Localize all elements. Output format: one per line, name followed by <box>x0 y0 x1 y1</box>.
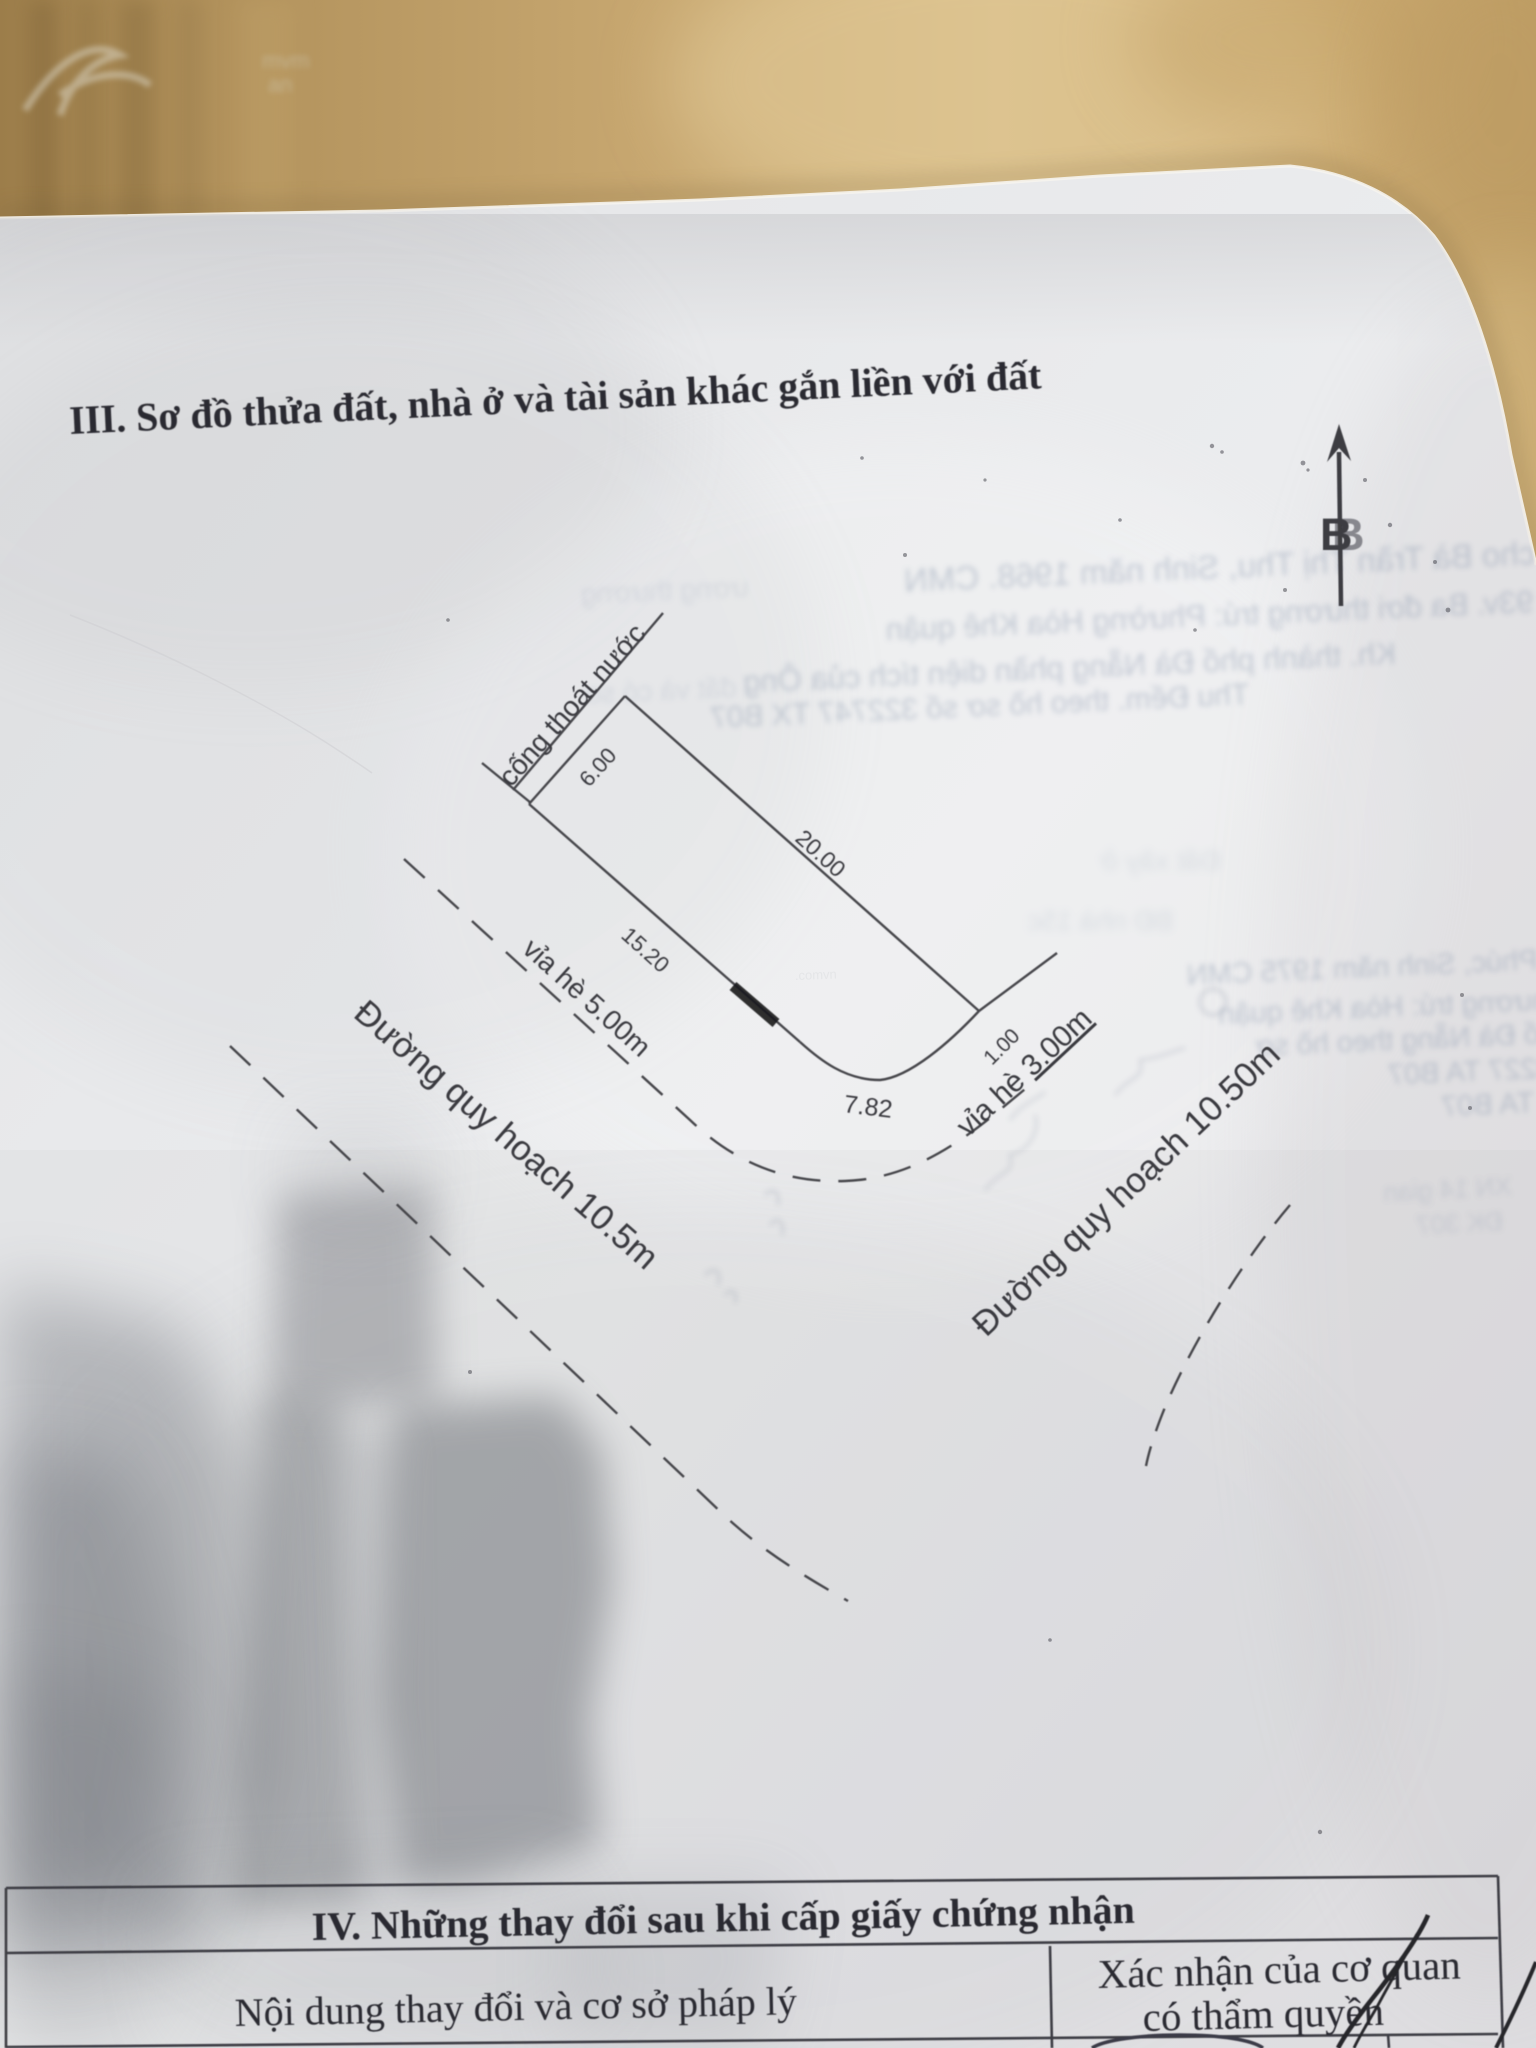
svg-text:ĐK 307: ĐK 307 <box>1415 1206 1503 1240</box>
svg-text:.comvn: .comvn <box>795 967 837 983</box>
svg-text:an: an <box>268 72 292 97</box>
svg-text:7.82: 7.82 <box>842 1090 894 1124</box>
svg-text:TA B07: TA B07 <box>1440 1087 1534 1123</box>
svg-text:Đất xây ở: Đất xây ở <box>1099 845 1220 876</box>
svg-text:mvm: mvm <box>262 48 310 73</box>
svg-text:B: B <box>1320 509 1353 560</box>
svg-text:BĐ nhà 15c: BĐ nhà 15c <box>1027 905 1173 936</box>
